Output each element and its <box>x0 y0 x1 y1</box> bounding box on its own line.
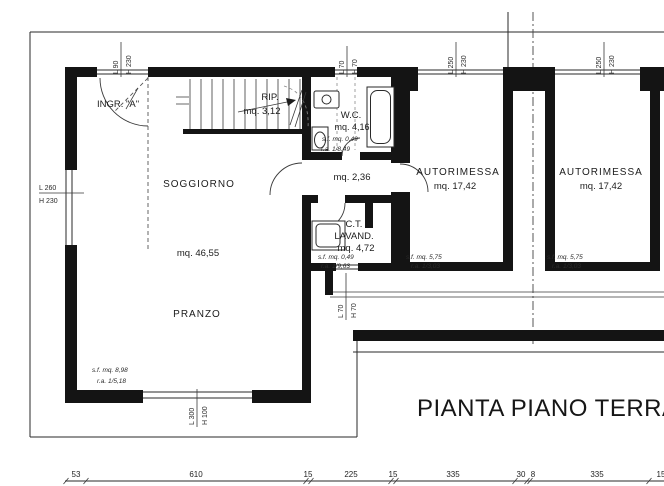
dim-335-b: 335 <box>590 470 604 479</box>
room-label-wc: W.C. <box>341 110 362 121</box>
garage-door-label-l250-2: L 250 <box>596 57 603 74</box>
wc-sf: s.f. mq. 0,49 <box>322 136 358 143</box>
room-label-autorimessa-1: AUTORIMESSA <box>416 167 500 178</box>
room-area-wc: mq. 4,16 <box>334 122 369 132</box>
room-area-autorimessa-1: mq. 17,42 <box>434 181 476 192</box>
floor-plan-svg: INGR. "A" RIP. mq. 3,12 SOGGIORNO mq. 46… <box>0 0 664 486</box>
dim-225: 225 <box>344 470 358 479</box>
room-area-disimpegno: mq. 2,36 <box>334 172 371 183</box>
dimension-chain: 53 610 15 225 15 335 30 8 335 15 <box>64 470 664 484</box>
room-label-ingresso: INGR. "A" <box>97 99 139 110</box>
pranzo-sf: s.f. mq. 8,98 <box>92 367 128 374</box>
lavanderia-sf: s.f. mq. 0,49 <box>318 254 354 261</box>
window-label-l70-lav: L 70 <box>338 305 345 318</box>
window-label-h230-left: H 230 <box>39 198 58 205</box>
room-label-rip: RIP. <box>261 92 278 103</box>
room-label-lavanderia: LAVAND. <box>334 231 373 242</box>
window-label-h70-top: H 70 <box>352 59 359 74</box>
pranzo-ra: r.a. 1/5,18 <box>97 378 126 385</box>
dim-15-a: 15 <box>304 470 313 479</box>
garage-door-label-l250-1: L 250 <box>448 57 455 74</box>
window-label-h100: H 100 <box>202 406 209 425</box>
sink-basin-icon <box>322 95 331 104</box>
dim-335-a: 335 <box>446 470 460 479</box>
stair-direction-arrowhead <box>286 98 296 106</box>
window-label-l260: L 260 <box>39 185 56 192</box>
window-label-l90: L 90 <box>113 61 120 74</box>
window-label-l70-top: L 70 <box>339 61 346 74</box>
room-area-autorimessa-2: mq. 17,42 <box>580 181 622 192</box>
dim-15-c: 15 <box>657 470 664 479</box>
autorimessa-1-ra: r.a. 1/3,03 <box>411 263 440 270</box>
dim-30: 30 <box>517 470 526 479</box>
room-area-rip: mq. 3,12 <box>244 106 281 117</box>
dim-8: 8 <box>531 470 536 479</box>
room-area-soggiorno: mq. 46,55 <box>177 248 219 259</box>
room-label-pranzo: PRANZO <box>173 309 221 320</box>
stairs <box>176 79 308 134</box>
autorimessa-1-sf: s.f. mq. 5,75 <box>406 254 442 261</box>
room-label-autorimessa-2: AUTORIMESSA <box>559 167 643 178</box>
dim-610: 610 <box>189 470 203 479</box>
room-area-lavanderia: mq. 4,72 <box>338 243 375 254</box>
autorimessa-2-sf: s.f. mq. 5,75 <box>547 254 583 261</box>
room-label-ct: C.T. <box>346 219 363 230</box>
floor-plan-page: INGR. "A" RIP. mq. 3,12 SOGGIORNO mq. 46… <box>0 0 664 486</box>
wc-ra: r.a. 1/8,49 <box>321 146 350 153</box>
lavanderia-ra: r.a. 1/9,63 <box>321 263 350 270</box>
garage-door-label-h230-2: H 230 <box>609 55 616 74</box>
window-label-h230-a: H 230 <box>126 55 133 74</box>
dim-53: 53 <box>72 470 81 479</box>
autorimessa-2-ra: r.a. 1/3,03 <box>552 263 581 270</box>
room-label-soggiorno: SOGGIORNO <box>163 179 235 190</box>
window-label-l300: L 300 <box>189 408 196 425</box>
window-label-h70-lav: H 70 <box>351 303 358 318</box>
bathtub-inner-icon <box>371 91 391 144</box>
drawing-title: PIANTA PIANO TERRA <box>417 395 664 422</box>
garage-door-label-h230-1: H 230 <box>461 55 468 74</box>
dim-15-b: 15 <box>389 470 398 479</box>
